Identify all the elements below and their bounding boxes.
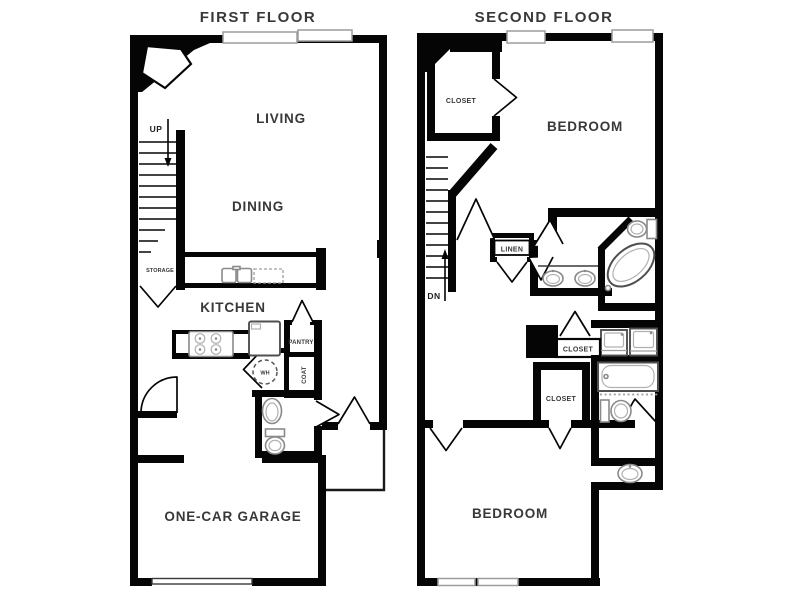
window bbox=[478, 579, 518, 586]
toilet-icon bbox=[601, 400, 610, 422]
stair-label-up: UP bbox=[150, 124, 163, 134]
pantry-door bbox=[292, 301, 313, 323]
porch-outline bbox=[326, 430, 384, 490]
room-label-dining: DINING bbox=[232, 199, 284, 214]
first-floor: FIRST FLOOR LIVING DINING KITCHEN ONE-CA… bbox=[130, 9, 387, 586]
down-arrow-head bbox=[442, 249, 449, 259]
label-storage: STORAGE bbox=[146, 268, 174, 274]
floor-plan-page: FIRST FLOOR LIVING DINING KITCHEN ONE-CA… bbox=[0, 0, 800, 600]
stair-corner-fill bbox=[425, 41, 458, 72]
hall-closet-door bbox=[560, 312, 590, 337]
refrigerator-icon bbox=[249, 322, 280, 356]
window bbox=[438, 579, 475, 586]
window bbox=[507, 31, 545, 43]
label-pantry: PANTRY bbox=[288, 340, 313, 346]
room-label-bedroom-second: BEDROOM bbox=[472, 506, 548, 521]
room-label-garage: ONE-CAR GARAGE bbox=[164, 509, 301, 524]
stair-label-down: DN bbox=[427, 291, 440, 301]
label-linen: LINEN bbox=[501, 247, 524, 254]
label-water-heater: WH bbox=[260, 371, 269, 377]
second-floor-stairs bbox=[426, 157, 449, 301]
window bbox=[298, 30, 352, 41]
master-bedroom-door bbox=[457, 199, 494, 240]
linen-door bbox=[497, 262, 527, 282]
kitchen-sink-icon bbox=[238, 269, 252, 283]
room-label-bedroom-master: BEDROOM bbox=[547, 119, 623, 134]
label-closet-second: CLOSET bbox=[546, 396, 577, 403]
tub-diagonal-wall bbox=[600, 219, 631, 250]
master-closet-door bbox=[494, 79, 517, 116]
stair-diagonal-wall bbox=[452, 146, 495, 195]
second-floor-title: SECOND FLOOR bbox=[475, 9, 614, 26]
stove-icon bbox=[189, 332, 233, 357]
floor-plan-image: FIRST FLOOR LIVING DINING KITCHEN ONE-CA… bbox=[0, 0, 800, 600]
first-floor-labels: FIRST FLOOR LIVING DINING KITCHEN ONE-CA… bbox=[146, 9, 316, 524]
label-coat: COAT bbox=[302, 366, 308, 383]
room-label-kitchen: KITCHEN bbox=[200, 300, 266, 315]
garage-door bbox=[152, 579, 252, 585]
tub-faucet-icon bbox=[606, 286, 611, 291]
first-floor-stairs bbox=[139, 119, 176, 252]
second-floor-walls bbox=[417, 33, 663, 586]
kitchen-sink-icon bbox=[222, 269, 236, 283]
entry-door bbox=[338, 397, 370, 424]
window bbox=[612, 30, 653, 42]
label-closet-hall: CLOSET bbox=[563, 347, 594, 354]
up-arrow-head bbox=[165, 158, 172, 167]
label-closet-master: CLOSET bbox=[446, 98, 477, 105]
garage-entry-door bbox=[141, 377, 177, 413]
master-bath-door bbox=[534, 220, 563, 246]
bathroom-sink-icon bbox=[263, 399, 282, 424]
toilet-icon bbox=[647, 220, 657, 239]
second-bedroom-door bbox=[430, 428, 462, 451]
dishwasher-icon bbox=[254, 269, 283, 283]
faucet-icon bbox=[233, 267, 240, 270]
storage-door bbox=[140, 286, 176, 307]
second-floor: SECOND FLOOR BEDROOM BEDROOM CLOSET LINE… bbox=[417, 9, 663, 586]
first-floor-title: FIRST FLOOR bbox=[200, 9, 317, 26]
room-label-living: LIVING bbox=[256, 111, 306, 126]
toilet-icon bbox=[266, 429, 285, 437]
first-floor-fixtures bbox=[189, 267, 285, 455]
window bbox=[223, 32, 297, 43]
second-closet-door bbox=[549, 428, 571, 449]
